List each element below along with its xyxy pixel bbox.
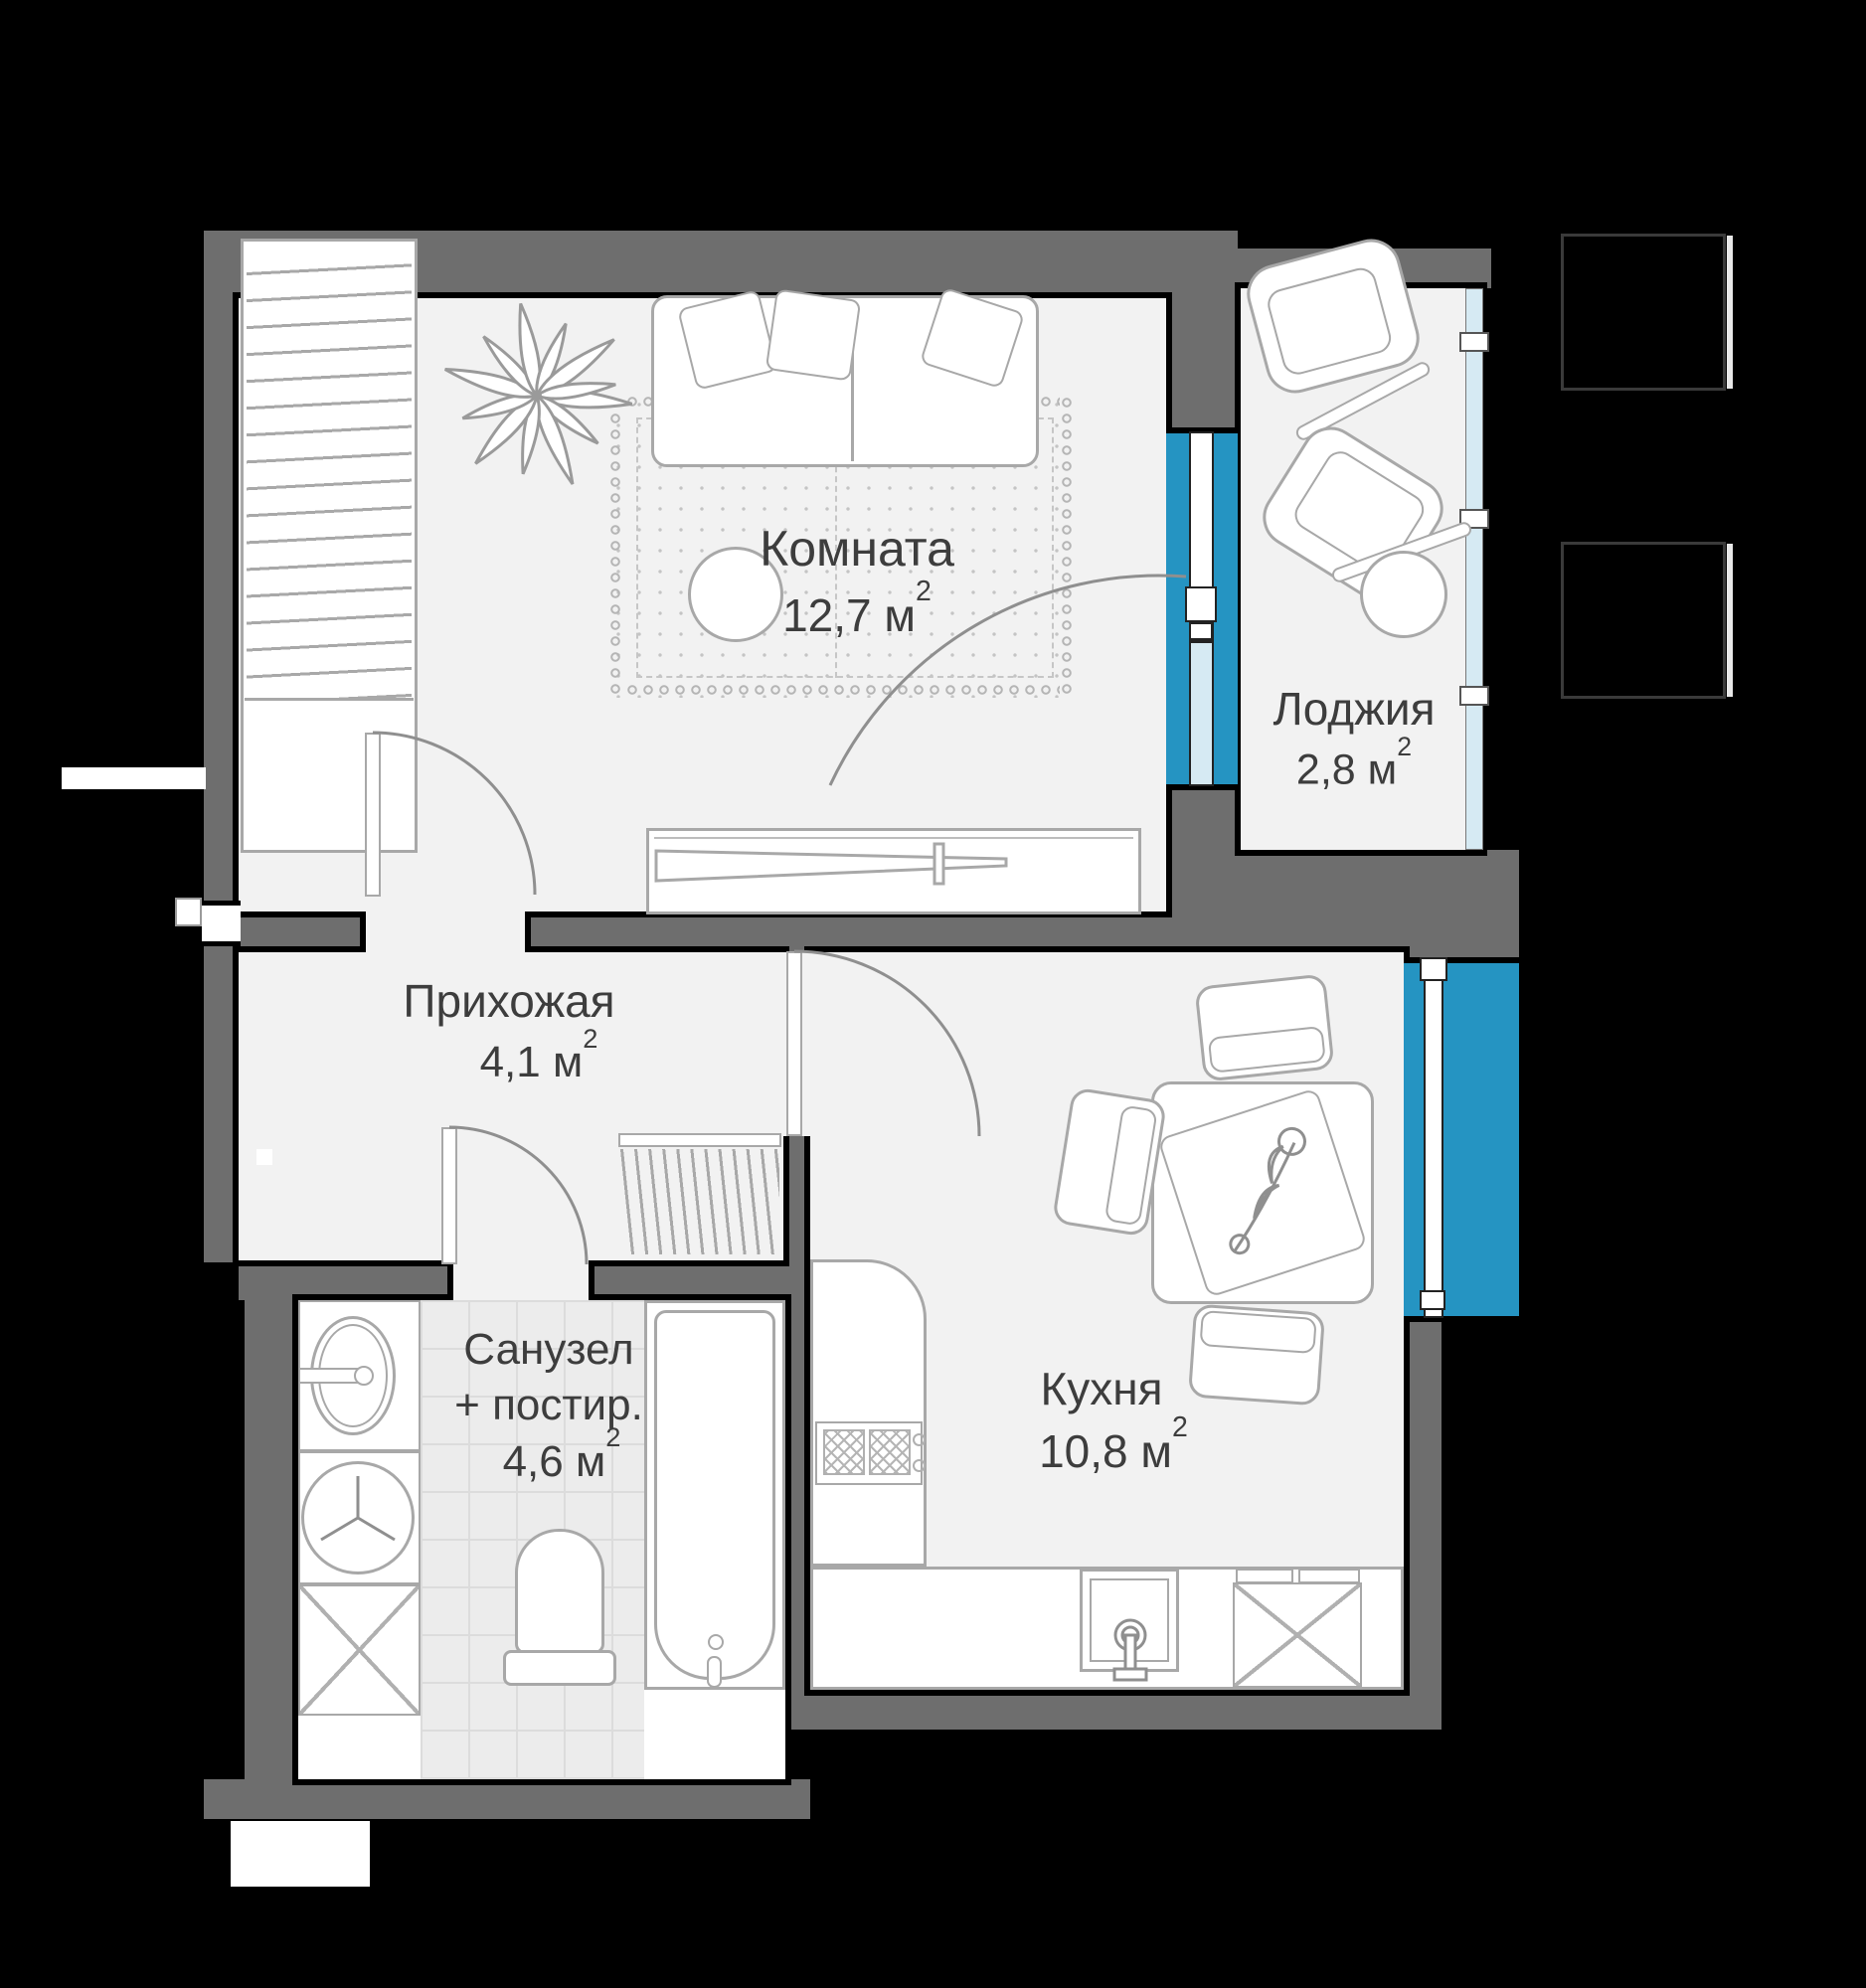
dining-chair-top — [1194, 973, 1334, 1081]
floor-plan: Комната 12,7 м2 Лоджия 2,8 м2 Прихожая 4… — [0, 0, 1866, 1988]
wall-pier-above-window — [1166, 298, 1238, 427]
toilet-tank — [503, 1650, 616, 1686]
loggia-glazing-mullion-3 — [1459, 686, 1489, 706]
kitchen-drawer-strip-2 — [1298, 1569, 1360, 1583]
washing-machine — [301, 1461, 415, 1574]
carpet-chain-right — [1060, 395, 1076, 698]
label-kitchen: Кухня 10,8 м2 — [1015, 1360, 1188, 1481]
washing-machine-drum-icon — [304, 1464, 412, 1572]
neighbour-balcony-2 — [1561, 542, 1726, 699]
label-hallway: Прихожая 4,1 м2 — [403, 972, 614, 1090]
label-bathroom-area: 4,6 м2 — [480, 1434, 643, 1490]
wall-pier-below-window — [1163, 790, 1238, 952]
toilet-bowl — [515, 1529, 604, 1654]
kitchen-window-cap — [1420, 957, 1447, 981]
balcony-door-glass — [1189, 641, 1214, 786]
tv-stand-edge-line — [654, 837, 1133, 839]
bath-cell-laundry-box — [298, 1584, 421, 1716]
wardrobe-shelf-line — [245, 698, 414, 701]
bottom-left-block — [231, 1821, 370, 1887]
stove-knob-2 — [913, 1459, 926, 1472]
label-loggia-name: Лоджия — [1273, 680, 1436, 739]
bathroom-door-opening — [447, 1260, 594, 1300]
bathtub-inner — [654, 1310, 775, 1680]
bathtub-drain — [708, 1634, 724, 1650]
wall-right-below-kitchen-window — [1404, 1322, 1442, 1690]
label-kitchen-area: 10,8 м2 — [1039, 1422, 1188, 1481]
wall-hall-kitchen-partition — [783, 1136, 810, 1690]
loggia-round-table — [1360, 551, 1447, 638]
label-kitchen-name: Кухня — [1015, 1360, 1188, 1418]
bath-faucet-bar — [298, 1368, 360, 1384]
corridor-wall-stub — [62, 767, 206, 789]
coat-rack-rail — [618, 1133, 781, 1147]
bath-faucet-knob — [354, 1366, 374, 1386]
label-hallway-area: 4,1 м2 — [462, 1035, 614, 1090]
balcony-door-handle — [1185, 586, 1217, 622]
wall-bath-left-pier — [245, 1166, 298, 1819]
tv-stand — [646, 828, 1141, 914]
balcony-door-handle-small — [1189, 622, 1213, 640]
label-room: Комната 12,7 м2 — [760, 517, 954, 645]
pier-notch — [256, 1149, 272, 1165]
entry-opening — [202, 901, 241, 946]
stove — [815, 1421, 923, 1485]
carpet-chain-left — [608, 395, 624, 698]
bathtub-overflow — [707, 1656, 722, 1688]
bathroom-door-leaf — [441, 1127, 457, 1264]
wall-loggia-bottom-mass — [1238, 850, 1519, 957]
label-room-area: 12,7 м2 — [760, 586, 954, 645]
loggia-glazing-mullion-1 — [1459, 332, 1489, 352]
room-door-leaf — [365, 733, 381, 897]
stove-burner-1 — [823, 1429, 865, 1475]
kitchen-door-leaf — [786, 951, 802, 1136]
stove-burner-2 — [869, 1429, 911, 1475]
kitchen-window-sash — [1424, 979, 1443, 1318]
kitchen-window-handle — [1420, 1290, 1445, 1310]
stove-knob-1 — [913, 1433, 926, 1446]
dining-chair-bottom — [1188, 1304, 1325, 1407]
label-bathroom: Санузел + постир. 4,6 м2 — [454, 1322, 643, 1490]
kitchen-counter-left — [810, 1259, 927, 1567]
facade-line-2 — [1727, 544, 1733, 697]
kitchen-sink-basin — [1090, 1578, 1169, 1662]
kitchen-appliance-box — [1233, 1582, 1362, 1688]
kitchen-window — [1404, 957, 1519, 1322]
label-room-name: Комната — [760, 517, 954, 580]
loggia-glazing — [1465, 288, 1483, 850]
sofa-pillow-2 — [765, 288, 862, 381]
kitchen-sink-unit — [1080, 1569, 1179, 1672]
wall-room-bottom — [204, 911, 1166, 952]
label-bathroom-name: Санузел — [454, 1322, 643, 1378]
label-loggia-area: 2,8 м2 — [1273, 743, 1436, 797]
neighbour-balcony-1 — [1561, 234, 1726, 391]
wall-left — [204, 231, 239, 1262]
label-loggia: Лоджия 2,8 м2 — [1273, 680, 1436, 797]
wall-bath-bottom — [204, 1779, 810, 1819]
wall-kitchen-bottom — [783, 1690, 1442, 1730]
facade-line-1 — [1727, 236, 1733, 389]
kitchen-drawer-strip-1 — [1236, 1569, 1293, 1583]
entry-door-leaf — [175, 898, 202, 926]
wardrobe-hangers — [247, 248, 412, 698]
carpet-chain-bottom — [624, 683, 1060, 698]
room-door-opening — [360, 911, 531, 952]
coat-rack-hangers — [620, 1149, 779, 1254]
